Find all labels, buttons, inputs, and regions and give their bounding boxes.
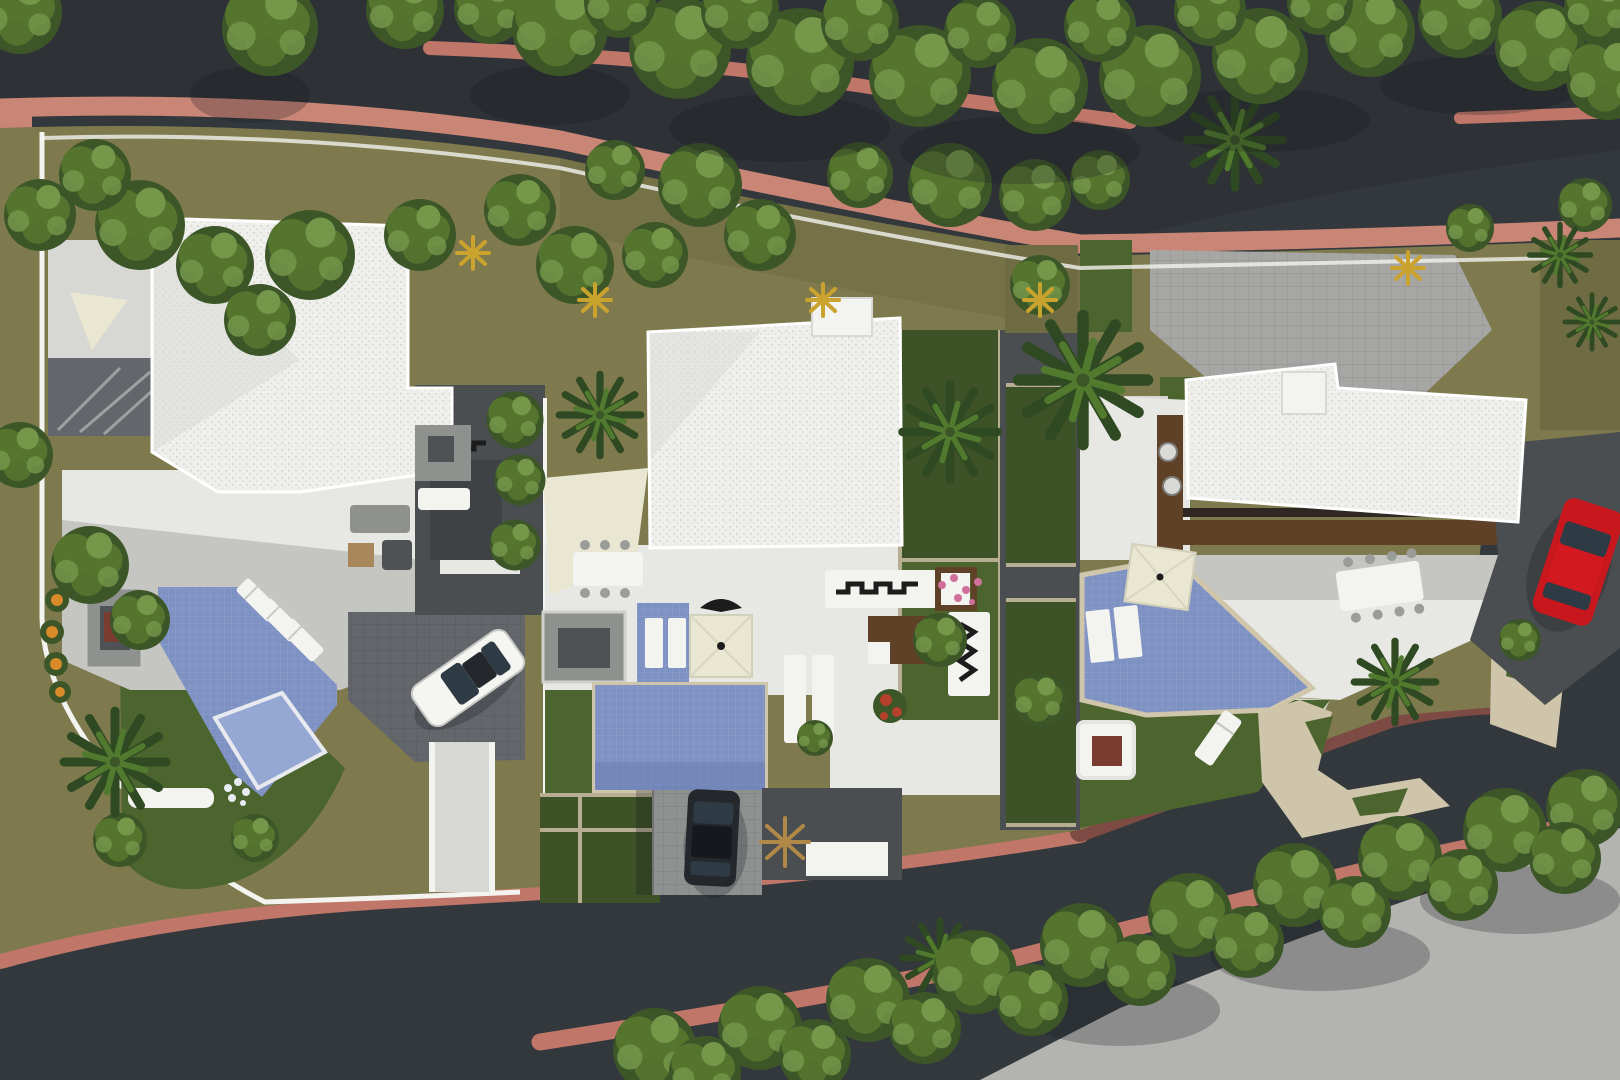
- west-entry-drive: [48, 358, 168, 436]
- east-umbrella: [1124, 544, 1195, 610]
- middle-red-bush: [873, 689, 907, 723]
- west-coffee-table: [348, 543, 374, 567]
- middle-wood-table-corner: [868, 642, 890, 664]
- east-pergola-beam: [1157, 520, 1515, 545]
- west-ramp: [432, 742, 492, 892]
- middle-white-pad: [806, 842, 888, 876]
- west-armchair: [382, 540, 412, 570]
- west-bench: [418, 488, 470, 510]
- east-bistro-2: [1163, 477, 1181, 495]
- east-bistro-1: [1159, 443, 1177, 461]
- east-courtyard: [1000, 245, 1080, 830]
- middle-shelf-lounger-1: [645, 618, 663, 668]
- middle-shelf-lounger-2: [668, 618, 686, 668]
- west-sofa: [350, 505, 410, 533]
- site-plan-canvas: [0, 0, 1620, 1080]
- east-roof-skylight: [1282, 372, 1326, 414]
- middle-stair-glyph: [836, 584, 918, 592]
- middle-dining-table: [573, 552, 643, 586]
- middle-pool-deep: [595, 762, 765, 790]
- west-roof-unit-inner: [428, 436, 454, 462]
- middle-lounge-rug: [558, 628, 610, 668]
- middle-dry-palm: [761, 818, 809, 866]
- east-firepit: [1092, 736, 1122, 766]
- middle-garage-shadow: [636, 790, 654, 895]
- site-plan-render: [0, 0, 1620, 1080]
- middle-lawn-strip: [545, 690, 600, 798]
